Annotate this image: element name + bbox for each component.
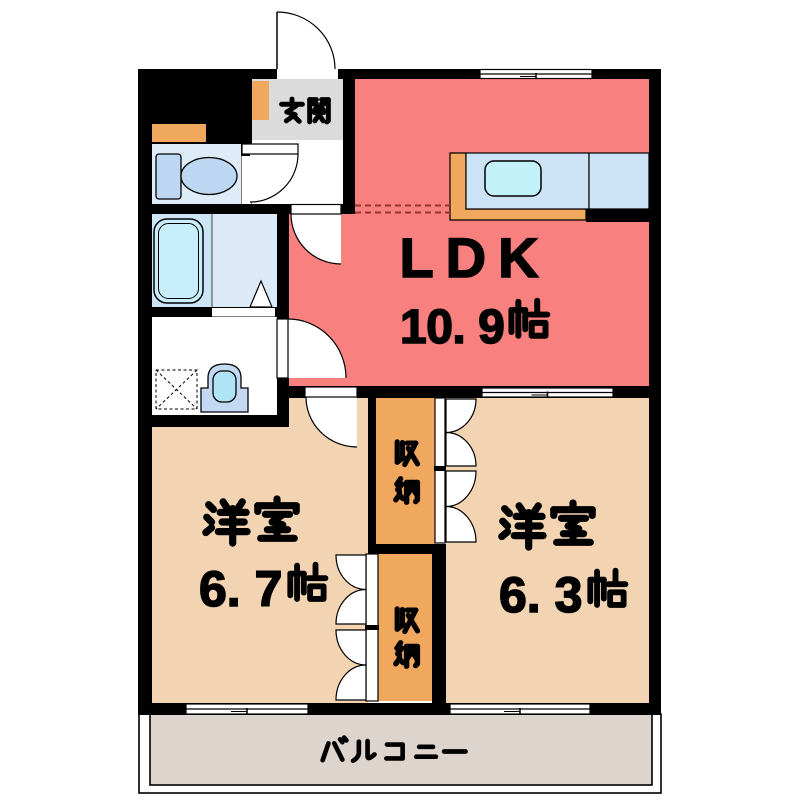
svg-text:10. 9: 10. 9 [400, 301, 504, 354]
svg-text:6. 3: 6. 3 [499, 567, 582, 623]
svg-text:LDK: LDK [399, 226, 550, 289]
svg-text:6. 7: 6. 7 [199, 561, 282, 617]
